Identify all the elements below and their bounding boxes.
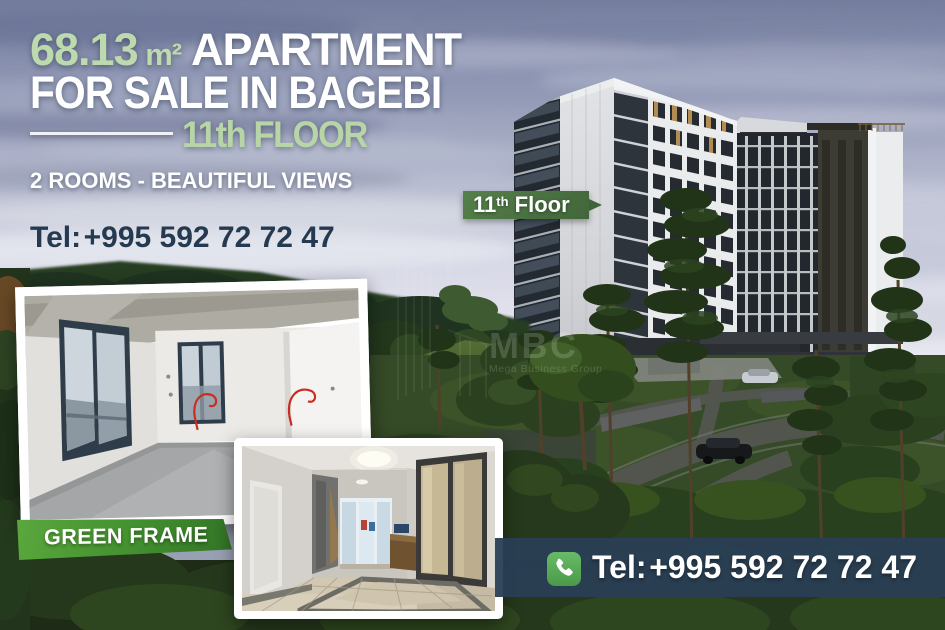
svg-text:Mega Business Group: Mega Business Group [489, 363, 602, 375]
svg-text:MBC: MBC [489, 325, 578, 366]
